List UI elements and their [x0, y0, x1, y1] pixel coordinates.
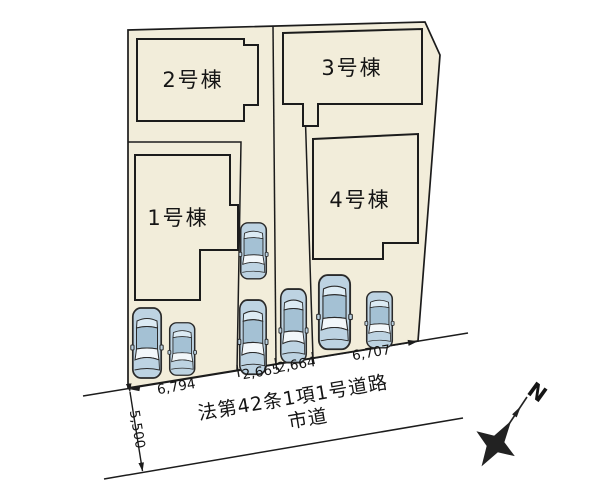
dimension-road-width: 5,500 [126, 409, 148, 450]
compass: N [478, 377, 552, 465]
car-lot3 [279, 289, 308, 363]
compass-star-icon [478, 422, 514, 465]
car-lot4-a [317, 275, 353, 349]
car-lot1-b [168, 323, 197, 376]
building-1-label: 1号棟 [147, 206, 208, 230]
site-plan-page: 1号棟 2号棟 3号棟 4号棟 6,794 2,665 2,664 6,707 … [0, 0, 600, 500]
car-lot2-a [239, 223, 268, 279]
building-4-label: 4号棟 [329, 188, 390, 212]
car-lot1-a [131, 308, 163, 378]
north-label: N [523, 377, 551, 407]
site-plan: 1号棟 2号棟 3号棟 4号棟 6,794 2,665 2,664 6,707 … [0, 0, 600, 500]
building-3-label: 3号棟 [321, 56, 382, 80]
compass-arrowhead [512, 406, 521, 417]
building-2-label: 2号棟 [162, 68, 223, 92]
road-edge-far-line [104, 418, 463, 479]
car-lot4-b [365, 292, 394, 348]
